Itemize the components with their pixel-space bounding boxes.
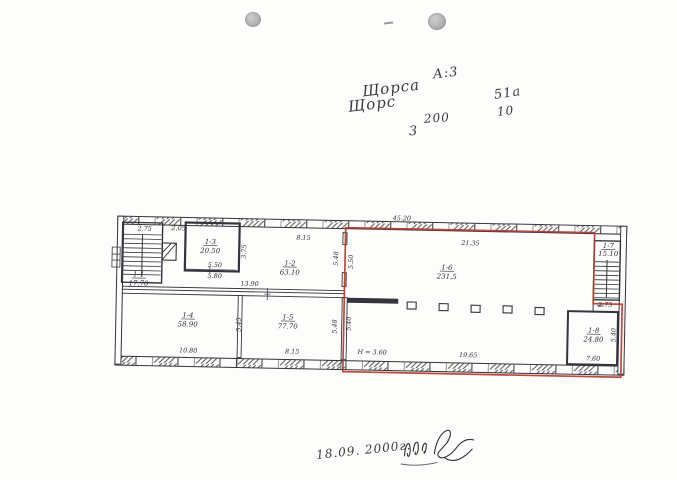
note-number-3: 3 — [408, 124, 418, 140]
punch-hole-right — [428, 13, 446, 30]
room-label-1-8: 1-8 — [588, 327, 600, 335]
corridor-walls — [122, 285, 344, 301]
room-label-1-5: 1-5 — [282, 313, 294, 321]
dim-stair-top: 2.75 — [136, 224, 151, 232]
dim-room4-5-height: 5.45 — [235, 317, 243, 331]
dim-room3-inner-width: 5.50 — [208, 261, 222, 269]
note-number-200: 200 — [424, 110, 451, 126]
note-street-2: Щорс — [347, 92, 397, 116]
room-area-1-2: 63.10 — [280, 268, 301, 276]
punch-hole-left — [245, 12, 261, 27]
dim-red-bottom-right: 5.40 — [345, 317, 353, 331]
room-area-1-3: 20.50 — [199, 247, 221, 255]
shaft-hatch — [162, 243, 176, 260]
dim-total-width: 45.20 — [392, 214, 411, 222]
note-ceiling-height: Н = 3.60 — [357, 348, 387, 357]
hall-columns — [407, 302, 544, 315]
room-label-1-7: 1-7 — [603, 242, 615, 250]
dim-hall-bottom: 19.65 — [459, 351, 477, 359]
dim-top-mid: 8.15 — [296, 234, 310, 242]
dim-room4-width: 10.80 — [179, 346, 197, 354]
dim-room3-outer-width: 5.80 — [207, 272, 221, 280]
room-area-1-8: 24.80 — [582, 335, 604, 343]
dim-room5-width: 8.15 — [285, 347, 299, 355]
room-label-1-4: 1-4 — [182, 311, 193, 319]
dim-room3-height: 3.75 — [240, 244, 248, 258]
scanned-floorplan-page: А:3 Щорса Щорс 51а 10 200 3 — [0, 0, 677, 480]
floor-plan-drawing: 1-1 17.70 1-2 63.10 1-3 20.50 1-4 58.90 … — [110, 210, 633, 390]
room-area-1-6: 231,5 — [436, 272, 458, 280]
dim-room8-height: 5.40 — [609, 328, 617, 342]
room-label-1-1: 1-1 — [133, 270, 144, 278]
room-label-1-2: 1-2 — [284, 259, 296, 267]
room-label-1-6: 1-6 — [441, 264, 453, 272]
room-label-1-3: 1-3 — [205, 238, 217, 246]
dim-corridor-length: 13.90 — [240, 280, 258, 288]
dim-shaft-gap: 2.05 — [170, 224, 185, 232]
signature — [396, 420, 491, 474]
room-area-1-1: 17.70 — [128, 279, 149, 287]
pen-dash-mark — [384, 22, 393, 25]
note-house-number-b: 10 — [496, 103, 515, 119]
room-area-1-4: 58.90 — [178, 320, 199, 328]
dim-hall-top: 21.35 — [460, 239, 479, 247]
note-object-code: А:3 — [432, 65, 459, 83]
room-area-1-7: 15.10 — [598, 250, 619, 258]
dim-landing: 2.75 — [597, 301, 612, 309]
room-area-1-5: 77.70 — [278, 322, 299, 330]
dim-red-top-right: 5.50 — [347, 255, 355, 269]
note-house-number-a: 51а — [493, 84, 522, 103]
dim-red-top-left: 5.48 — [332, 251, 340, 265]
dim-room8-width: 7.60 — [586, 355, 600, 363]
dim-red-bottom-left: 5.48 — [331, 319, 339, 333]
